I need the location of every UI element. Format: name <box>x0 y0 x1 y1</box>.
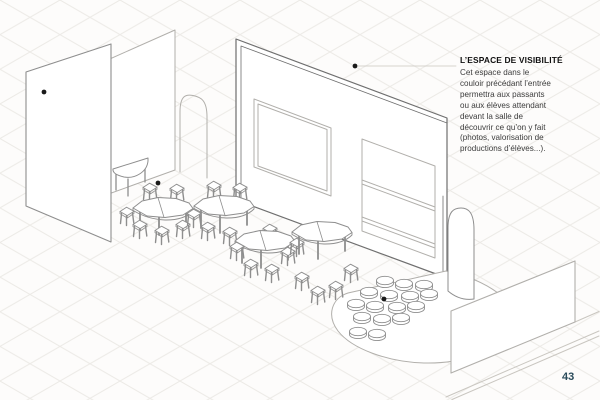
pouf <box>396 279 413 290</box>
pouf <box>369 329 386 340</box>
annotation-body-line: (photos, valorisation de <box>460 133 578 144</box>
pouf <box>361 287 378 298</box>
pouf <box>377 276 394 287</box>
annotation-body-line: productions d’élèves...). <box>460 144 578 155</box>
page-number: 43 <box>562 371 574 383</box>
annotation-body: Cet espace dans le couloir précédant l’e… <box>460 68 578 155</box>
annotation-title: L’ESPACE DE VISIBILITÉ <box>460 55 578 65</box>
marker-dot-left-panel <box>42 90 47 95</box>
pouf <box>393 313 410 324</box>
annotation-body-line: devant la salle de <box>460 112 578 123</box>
annotation-callout: L’ESPACE DE VISIBILITÉ Cet espace dans l… <box>460 55 578 155</box>
marker-dot-display-wall <box>353 64 358 69</box>
pouf <box>374 314 391 325</box>
marker-dot-console-table <box>156 181 161 186</box>
pouf <box>408 301 425 312</box>
annotation-body-line: ou aux élèves attendant <box>460 101 578 112</box>
annotation-body-line: permettra aux passants <box>460 90 578 101</box>
pouf <box>348 299 365 310</box>
pouf <box>350 327 367 338</box>
pouf <box>421 289 438 300</box>
pouf <box>367 301 384 312</box>
pouf <box>389 302 406 313</box>
pouf <box>354 312 371 323</box>
annotation-body-line: couloir précédant l’entrée <box>460 79 578 90</box>
wall-end-arch <box>448 208 474 299</box>
document-page: L’ESPACE DE VISIBILITÉ Cet espace dans l… <box>0 0 600 400</box>
marker-dot-rug <box>382 297 387 302</box>
annotation-body-line: découvrir ce qu’on y fait <box>460 123 578 134</box>
annotation-body-line: Cet espace dans le <box>460 68 578 79</box>
